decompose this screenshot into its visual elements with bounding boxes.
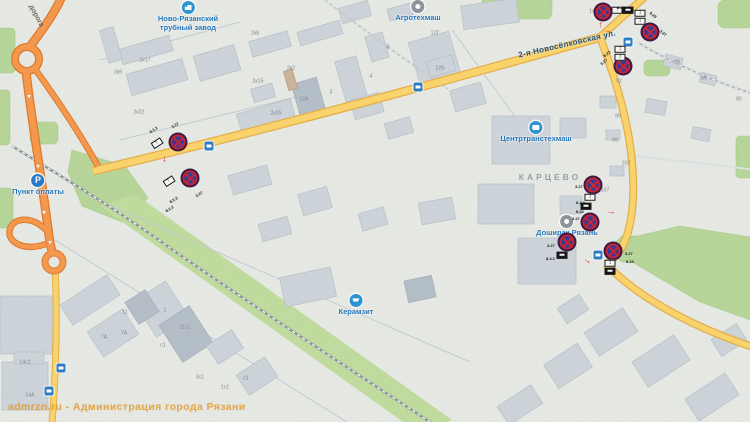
building-number: 3 [330,89,333,95]
sign-code-label: 3.27 [575,184,583,189]
no-stopping-sign-icon[interactable] [183,171,198,186]
one-way-arrow-icon: ▾ [48,240,52,247]
building-number: 7А [121,330,127,336]
bus-glyph [533,125,540,130]
dot-glyph [416,4,421,9]
poi-novo-ryazanskiy-trubnyy-zavod[interactable]: Ново-Рязанскийтрубный завод [158,1,218,32]
building-number: 3с1 [196,374,204,380]
one-way-arrow-icon: ▾ [36,164,40,171]
building-number: 1 [164,307,167,313]
building-number: 2к22 [133,109,144,115]
building-number: 14 [589,8,595,14]
building-number: 4 [370,73,373,79]
one-way-arrow-icon: ▾ [27,94,31,101]
poi-label: Пункт оплаты [12,188,64,197]
no-stopping-sign-icon[interactable] [586,178,601,193]
no-stopping-sign-icon[interactable] [596,5,611,20]
no-stopping-sign-icon[interactable] [643,25,658,40]
factory-icon[interactable] [181,1,194,14]
building-number: 11 [122,309,127,315]
sign-code-label: 3.27 [547,243,555,248]
parking-glyph: P [35,174,41,187]
watermark: admrzn.ru - Администрация города Рязани [8,401,246,413]
building-number: 14А [25,392,34,398]
poi-label: Центртранстехмаш [500,135,571,144]
building-number: 107 [601,187,610,193]
direction-arrow-icon: → [603,24,614,35]
building-number: 95 [615,113,621,119]
poi-punkt-oplaty[interactable]: PПункт оплаты [12,174,64,197]
building-number: 2к9 [114,69,122,75]
building-number: 12Г [431,30,440,36]
building-number: 11с1 [180,324,191,330]
building-number: 2к25 [270,110,281,116]
direction-arrow-icon: → [594,21,604,30]
direction-arrow-icon: → [607,206,616,216]
building-number: 86 [701,75,707,81]
map-canvas[interactable]: дорога2-я Новосёлковская ул.КАРЦЕВО2к172… [0,0,750,422]
cart-glyph [353,298,360,303]
sign-plate-updown: ↕ [615,46,626,53]
building-number: с1 [243,375,249,381]
dot-icon[interactable] [412,0,425,13]
building-number: с1 [160,342,166,348]
poi-keramzit[interactable]: Керамзит [339,294,374,317]
sign-plate-updown: ↕ [635,18,646,25]
no-stopping-sign-icon[interactable] [583,215,598,230]
sign-plate-updown: ↕ [605,260,616,267]
one-way-arrow-icon: ▾ [42,210,46,217]
map-base-layer [0,0,750,422]
bus-stop-icon[interactable] [594,251,603,260]
building-number: 12А [299,96,308,102]
dot-glyph [564,219,569,224]
building-number: 80 [736,96,742,102]
cart-icon[interactable] [350,294,363,307]
bus-stop-icon[interactable] [45,387,54,396]
sign-code-label: 8.23 [626,259,634,264]
sign-code-label: 3.27 [572,216,580,221]
sign-code-label: 3.27 [625,251,633,256]
building-number: 2к2 [287,65,295,71]
sign-plate-black [557,252,568,259]
no-stopping-sign-icon[interactable] [616,59,631,74]
building-number: 92 [616,78,622,84]
building-number: 2к15 [252,78,263,84]
building-number: 8 [387,44,390,50]
no-stopping-sign-icon[interactable] [606,244,621,259]
bus-stop-icon[interactable] [57,364,66,373]
direction-arrow-icon: → [161,155,171,164]
poi-label: Ново-Рязанскийтрубный завод [158,15,218,32]
sign-plate-updown: ↕ [635,10,646,17]
poi-tsentrtranstekhmash[interactable]: Центртранстехмаш [500,121,571,144]
building-number: 89 [674,59,680,65]
sign-plate-updown: ↕ [615,54,626,61]
building-number: 102 [622,160,631,166]
parking-icon[interactable]: P [31,174,44,187]
sign-code-label: 8.4.1 [546,256,555,261]
building-number: 2к17 [139,57,150,63]
bus-stop-icon[interactable] [414,83,423,92]
factory-glyph [184,5,191,10]
sign-code-label: 8.2.2 [576,200,585,205]
poi-agrotekhmash[interactable]: Агротехмаш [395,0,440,23]
no-stopping-sign-icon[interactable] [171,135,186,150]
sign-plate-black [605,268,616,275]
bus-icon[interactable] [530,121,543,134]
building-number: 7А [101,334,107,340]
sign-plate-updown: ↕ [585,194,596,201]
poi-label: Керамзит [339,308,374,317]
poi-label: Агротехмаш [395,14,440,23]
no-stopping-sign-icon[interactable] [560,235,575,250]
building-number: 2к8 [251,30,259,36]
sign-code-label: 8.24 [576,209,584,214]
building-number: 99 [612,137,618,143]
building-number: 14с1 [19,359,30,365]
building-number: 1с1 [221,384,229,390]
sign-code-label: 8.23 [617,5,625,10]
bus-stop-icon[interactable] [205,142,214,151]
building-number: 12Б [435,65,444,71]
